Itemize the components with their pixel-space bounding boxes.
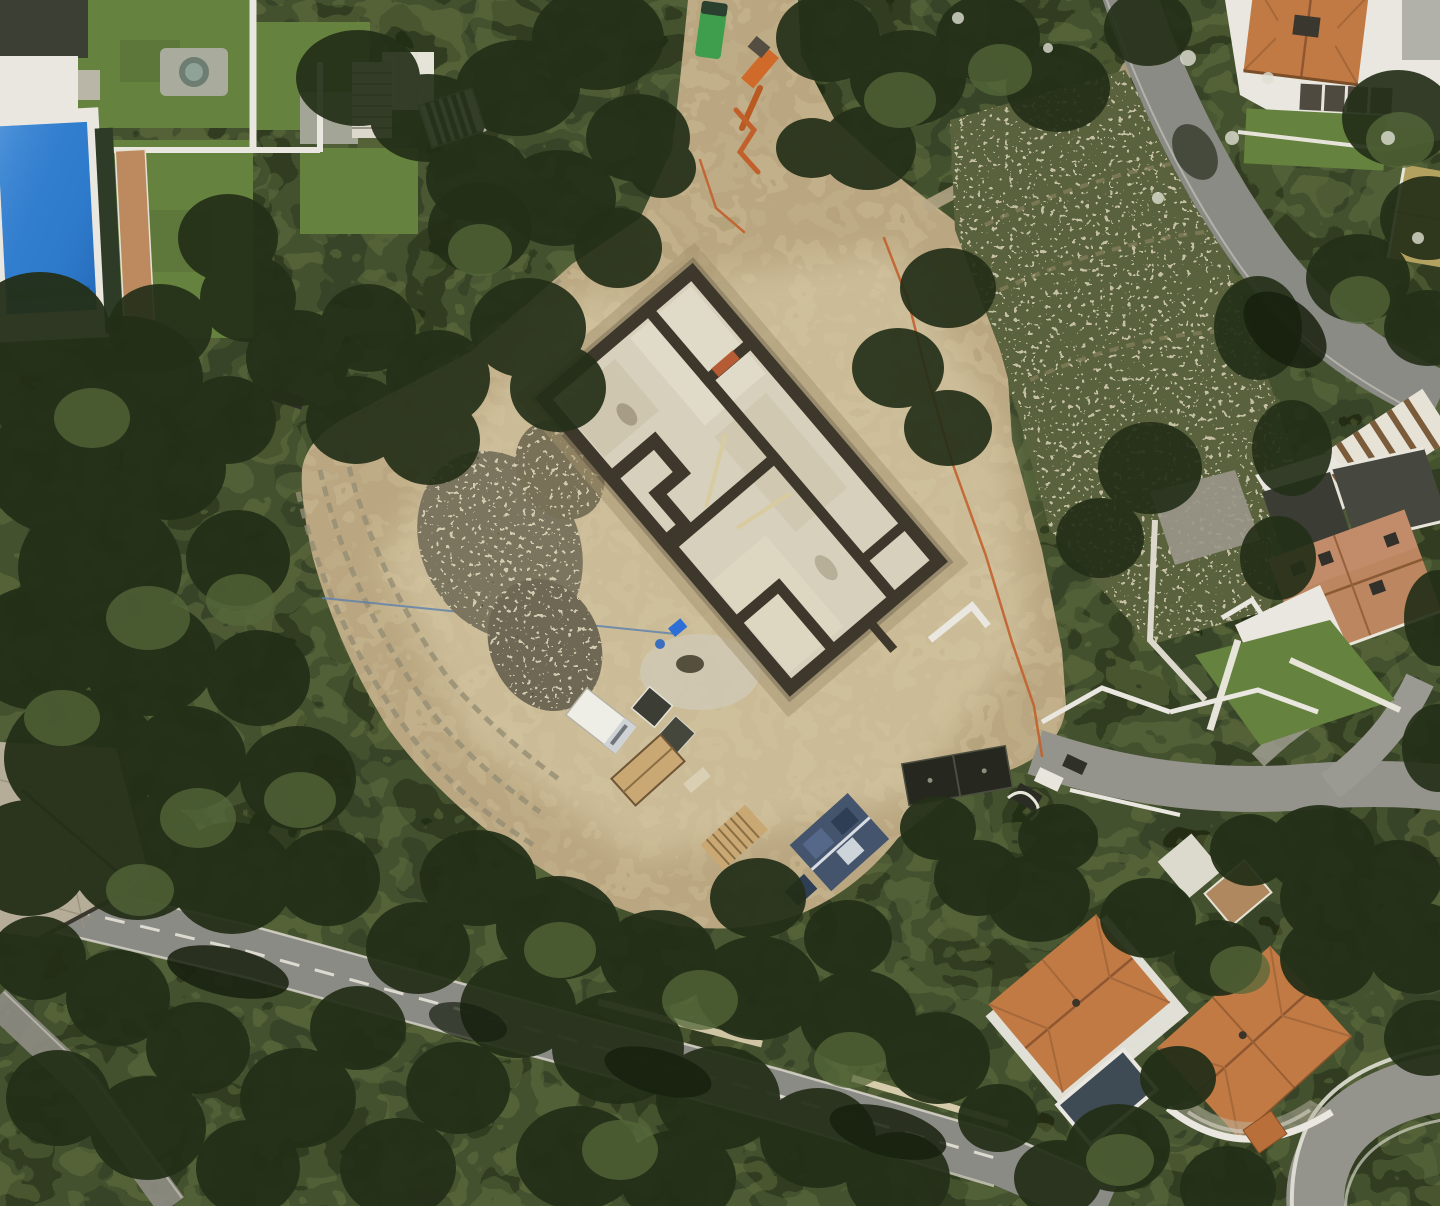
hot-tub-water: [185, 63, 203, 81]
flat-roof-building: [0, 0, 88, 58]
stain: [676, 655, 704, 673]
steps: [78, 70, 100, 100]
aerial-photo: Aerial satellite view — hillside villa c…: [0, 0, 1440, 1206]
satellite-image-viewport: Aerial satellite view — hillside villa c…: [0, 0, 1440, 1206]
machine-part: [655, 639, 665, 649]
terracotta-roof-house: [1244, 0, 1369, 85]
white-building: [0, 56, 78, 114]
patio: [1402, 0, 1440, 60]
chimney: [1292, 15, 1320, 38]
